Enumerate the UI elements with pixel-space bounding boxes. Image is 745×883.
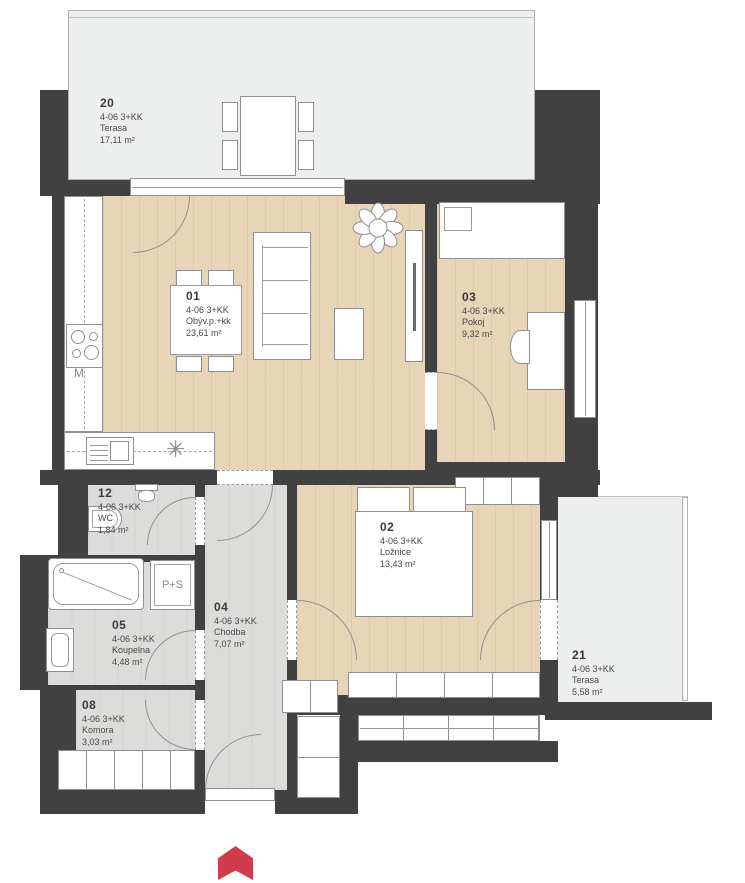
terrace-chair (222, 140, 238, 170)
bedroom-wardrobe-bottom (348, 672, 540, 698)
wall-segment (52, 180, 130, 196)
unit-code: 4-06 3+KK (214, 616, 257, 628)
wall-segment (52, 180, 64, 480)
coffee-table (334, 308, 364, 360)
single-bed (439, 202, 565, 259)
plant-icon (352, 202, 404, 254)
room-area: 7,07 m² (214, 639, 257, 651)
dining-chair (208, 270, 234, 286)
sofa-back-line (262, 245, 263, 347)
dishwasher-symbol: ✳ (166, 436, 185, 463)
room-name: Ložnice (380, 547, 423, 559)
terrace-chair (222, 102, 238, 132)
room-label-storage: 08 4-06 3+KK Komora 3,03 m² (82, 698, 125, 749)
washer-dryer-cabinet: P+S (150, 560, 195, 610)
unit-code: 4-06 3+KK (380, 536, 423, 548)
wall-segment (545, 702, 712, 720)
burner (84, 345, 99, 360)
room-label-terrace-20: 20 4-06 3+KK Terasa 17,11 m² (100, 96, 143, 147)
terrace-table (240, 96, 296, 176)
fridge-label: M (74, 366, 84, 380)
room-number: 04 (214, 600, 257, 616)
washer-dryer-label: P+S (154, 564, 191, 606)
pillow (444, 207, 472, 231)
storage-shelves (58, 750, 195, 790)
room-area: 5,58 m² (572, 687, 615, 699)
burner (71, 330, 85, 344)
drain-rack (90, 442, 108, 461)
room-name: Chodba (214, 627, 257, 639)
room-area: 17,11 m² (100, 135, 143, 147)
room-area: 3,03 m² (82, 737, 125, 749)
door-opening-wc (195, 497, 205, 545)
tv-bench (405, 230, 423, 362)
dining-chair (176, 270, 202, 286)
door-opening-hallway (217, 470, 273, 485)
room-label-terrace-21: 21 4-06 3+KK Terasa 5,58 m² (572, 648, 615, 699)
terrace-21-top-line (598, 496, 688, 497)
unit-code: 4-06 3+KK (82, 714, 125, 726)
room-label-hallway: 04 4-06 3+KK Chodba 7,07 m² (214, 600, 257, 651)
kitchen-counter (64, 196, 103, 432)
room-name: Obýv.p.+kk (186, 316, 231, 328)
north-arrow-icon (218, 846, 253, 880)
room-number: 03 (462, 290, 505, 306)
room-label-wc: 12 4-06 3+KK WC 1,84 m² (98, 486, 141, 537)
hall-closet (282, 680, 338, 713)
terrace-21-frame (682, 497, 688, 701)
room-label-bedroom: 02 4-06 3+KK Ložnice 13,43 m² (380, 520, 423, 571)
room-area: 23,61 m² (186, 328, 231, 340)
sink-basin (110, 441, 129, 461)
room-number: 02 (380, 520, 423, 536)
room-number: 20 (100, 96, 143, 112)
burner (72, 349, 81, 358)
bedroom-window (541, 520, 557, 600)
hall-closet (297, 716, 340, 798)
sofa-line (262, 313, 308, 314)
wall-segment (345, 180, 437, 204)
unit-code: 4-06 3+KK (98, 502, 141, 514)
door-opening-bedroom (287, 600, 297, 660)
wall-segment (535, 90, 600, 204)
room-label-living: 01 4-06 3+KK Obýv.p.+kk 23,61 m² (186, 289, 231, 340)
bedroom-wardrobe-top (455, 477, 540, 505)
floor-plan: M ✳ (0, 0, 745, 883)
room-name: Terasa (572, 675, 615, 687)
door-opening-room-03 (425, 372, 437, 430)
room-name: Terasa (100, 123, 143, 135)
drain (59, 568, 64, 573)
bedroom-exterior-window-band (358, 715, 540, 741)
door-opening-storage (195, 700, 205, 750)
sofa-line (262, 247, 308, 248)
room-number: 21 (572, 648, 615, 664)
terrace-chair (298, 140, 314, 170)
kitchen-sink (86, 437, 134, 465)
unit-code: 4-06 3+KK (112, 634, 155, 646)
burner (89, 332, 98, 341)
room-area: 4,48 m² (112, 657, 155, 669)
wall-segment (58, 485, 88, 555)
wall-segment (558, 470, 598, 497)
closet-divider (310, 681, 311, 712)
tv-screen (413, 263, 416, 331)
door-opening-bathroom (195, 630, 205, 680)
sofa-line (262, 344, 308, 345)
room-area: 1,84 m² (98, 525, 141, 537)
room-number: 08 (82, 698, 125, 714)
desk-chair (510, 330, 530, 364)
sofa-line (262, 280, 308, 281)
basin-inner (51, 633, 69, 667)
room-number: 05 (112, 618, 155, 634)
bathroom-washbasin (46, 628, 74, 672)
terrace-20-edge-line (69, 17, 534, 18)
unit-code: 4-06 3+KK (462, 306, 505, 318)
terrace-sliding-door (130, 178, 345, 196)
room-number: 12 (98, 486, 141, 502)
room-number: 01 (186, 289, 231, 305)
pillow (413, 487, 466, 512)
room-name: WC (98, 513, 141, 525)
stove (66, 324, 103, 368)
room-03-window (574, 300, 596, 418)
room-label-bathroom: 05 4-06 3+KK Koupelna 4,48 m² (112, 618, 155, 669)
room-name: Komora (82, 725, 125, 737)
wall-segment (20, 555, 48, 690)
desk (527, 312, 565, 390)
room-name: Koupelna (112, 645, 155, 657)
unit-code: 4-06 3+KK (572, 664, 615, 676)
room-label-room-03: 03 4-06 3+KK Pokoj 9,32 m² (462, 290, 505, 341)
unit-code: 4-06 3+KK (186, 305, 231, 317)
bathtub (48, 558, 144, 610)
room-area: 9,32 m² (462, 329, 505, 341)
unit-code: 4-06 3+KK (100, 112, 143, 124)
sofa (253, 232, 311, 360)
dining-chair (208, 356, 234, 372)
wall-segment (340, 715, 358, 814)
dining-chair (176, 356, 202, 372)
terrace-chair (298, 102, 314, 132)
wall-segment (358, 741, 558, 762)
room-area: 13,43 m² (380, 559, 423, 571)
room-name: Pokoj (462, 317, 505, 329)
door-opening-terrace-21 (540, 600, 558, 660)
wall-segment (40, 790, 205, 814)
pillow (357, 487, 410, 512)
closet-divider (298, 757, 339, 758)
